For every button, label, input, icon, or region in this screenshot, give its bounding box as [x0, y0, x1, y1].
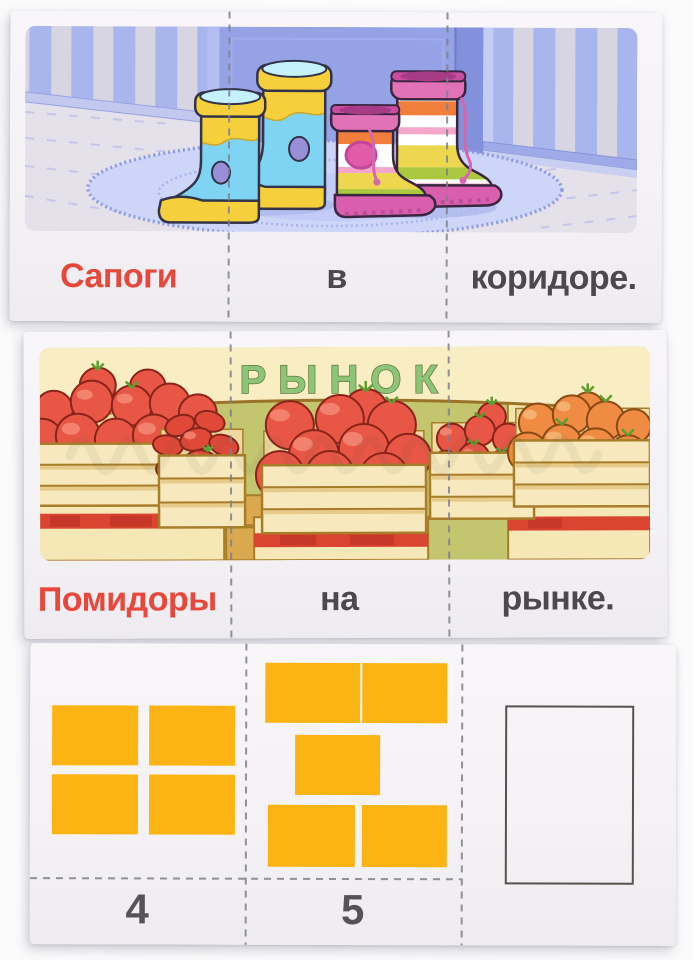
boots-illustration: [25, 26, 638, 233]
sentence-card-market: РЫНОК: [24, 330, 668, 639]
counting-tile: [362, 663, 447, 723]
counting-tile: [149, 705, 235, 765]
right-striped-wall: [483, 28, 638, 179]
counting-tile: [52, 705, 138, 765]
sentence-row: Помидоры на рынке.: [24, 559, 667, 639]
empty-answer-frame: [505, 705, 634, 884]
photo-of-flashcards: { "page": { "background_color": "#fcfbfc…: [0, 0, 693, 960]
sentence-segment: Сапоги: [9, 231, 227, 322]
counting-tile: [362, 805, 447, 867]
counting-card: 4 5: [30, 643, 677, 946]
market-scene: РЫНОК: [40, 346, 651, 561]
sentence-segment: рынке.: [448, 559, 667, 638]
sentence-segment: в: [227, 232, 445, 323]
count-label-5: 5: [245, 884, 461, 937]
sentence-segment: на: [230, 560, 448, 639]
sentence-row: Сапоги в коридоре.: [9, 231, 661, 323]
sentence-segment: коридоре.: [445, 232, 661, 323]
counting-tile: [268, 805, 355, 867]
count-label-4: 4: [30, 883, 245, 936]
sentence-card-boots: Сапоги в коридоре.: [9, 11, 662, 323]
market-illustration: РЫНОК: [40, 346, 651, 561]
counting-tile: [295, 735, 380, 795]
counting-tile: [265, 663, 360, 723]
sentence-segment: Помидоры: [24, 560, 230, 639]
counting-tile: [52, 774, 138, 834]
counting-section-3: [461, 644, 677, 946]
hallway-scene: [25, 26, 638, 233]
counting-tile: [149, 774, 235, 834]
